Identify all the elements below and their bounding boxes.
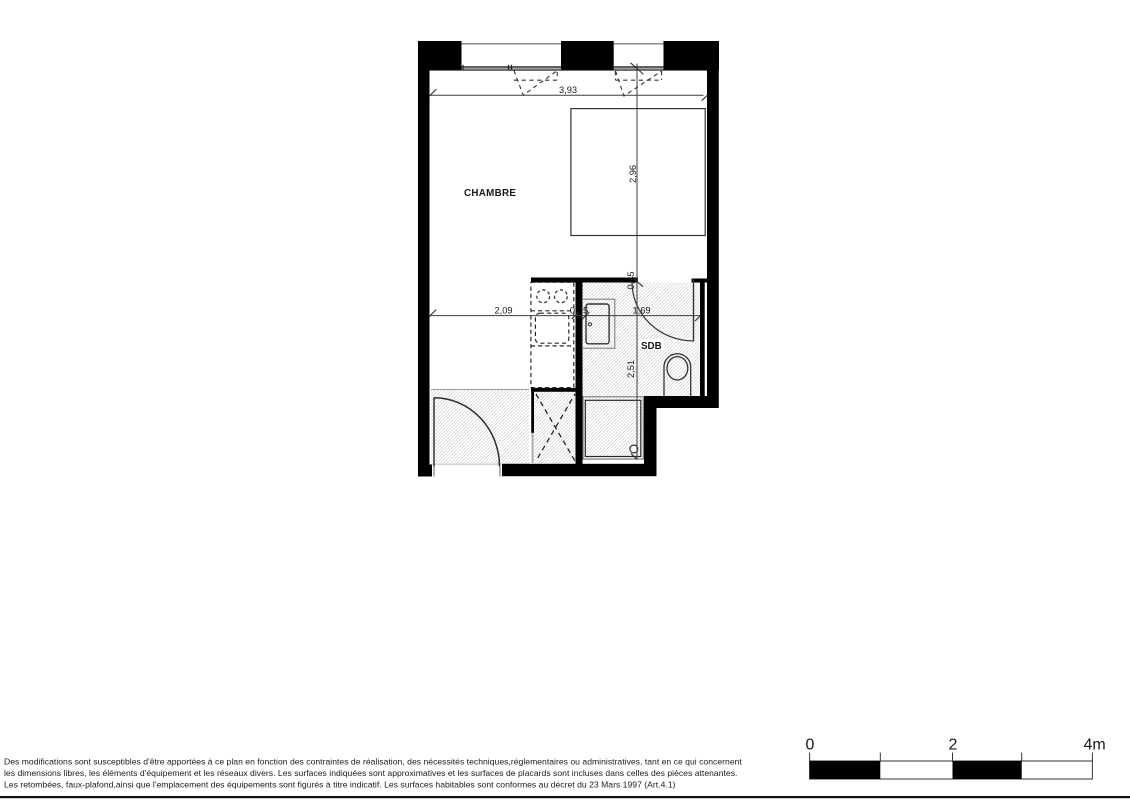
svg-text:3,93: 3,93 — [559, 85, 577, 95]
svg-text:0: 0 — [806, 737, 815, 754]
svg-text:SDB: SDB — [641, 341, 662, 352]
svg-text:2,51: 2,51 — [626, 360, 636, 378]
svg-text:4m: 4m — [1084, 737, 1106, 754]
svg-text:CHAMBRE: CHAMBRE — [464, 188, 516, 199]
svg-text:Des modifications sont suscept: Des modifications sont susceptibles d'êt… — [4, 757, 742, 767]
svg-text:2,09: 2,09 — [494, 305, 512, 315]
svg-text:Les retombées, faux-plafond,ai: Les retombées, faux-plafond,ainsi que l'… — [4, 780, 676, 790]
svg-text:1,69: 1,69 — [632, 305, 650, 315]
svg-text:2,96: 2,96 — [628, 165, 638, 183]
svg-text:2: 2 — [949, 737, 958, 754]
svg-text:les dimensions libres, les élé: les dimensions libres, les éléments d'éq… — [4, 768, 737, 778]
